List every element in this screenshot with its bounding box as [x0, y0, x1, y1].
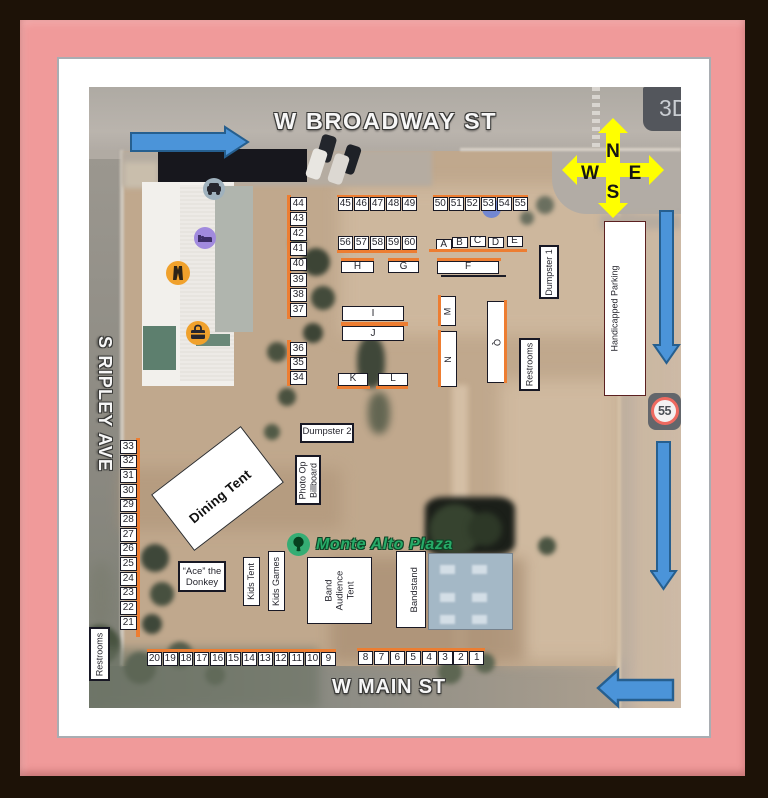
- svg-text:N: N: [606, 141, 620, 162]
- svg-text:W: W: [581, 163, 599, 184]
- svg-text:E: E: [629, 163, 642, 184]
- svg-text:S: S: [607, 182, 620, 203]
